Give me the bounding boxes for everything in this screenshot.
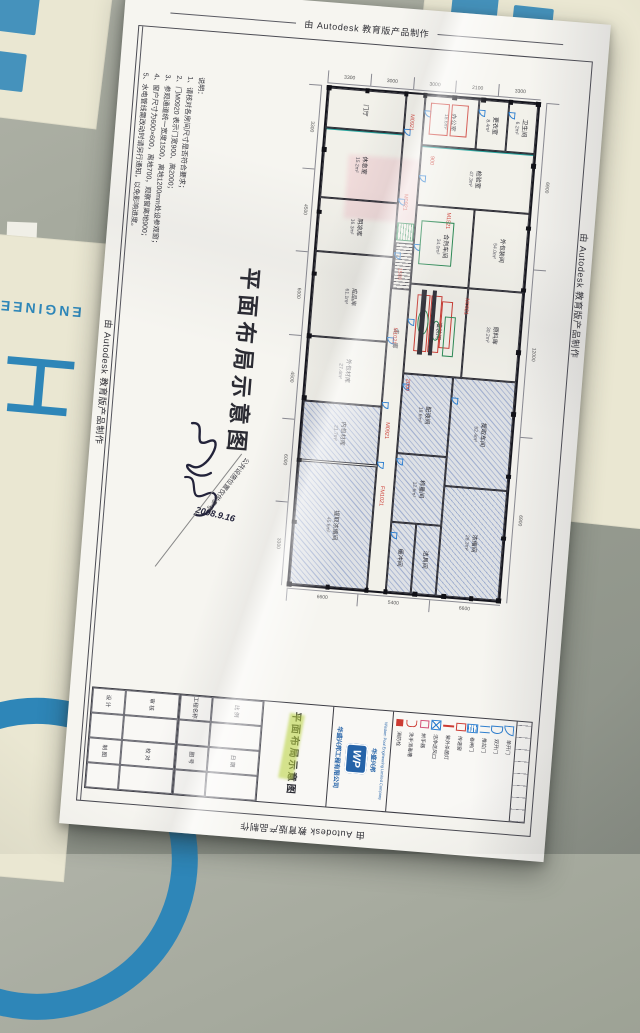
dimension-value: 6600 (428, 600, 500, 618)
signature-scribble (154, 412, 273, 541)
legend-symbol-roll-icon (467, 722, 479, 735)
legend-symbol-glyph (504, 726, 515, 737)
field-value (177, 719, 210, 746)
title-block-drawing-name-cell: 平面布局示意图 (257, 701, 335, 806)
dimension-value: 5400 (357, 594, 429, 612)
room-label: 配液间 (423, 406, 433, 425)
field-value (85, 762, 120, 790)
title-block-fields-b: 工程名称图 号比 例日 期 (173, 695, 265, 801)
column-square (404, 91, 409, 96)
door-code-annotation: 900 (428, 155, 435, 165)
legend-symbol-glyph (396, 718, 404, 726)
dimension-value: 3000 (370, 74, 414, 89)
column-square (452, 95, 457, 100)
title-block-fields-a: 设 计制 图审 核校 对 (85, 687, 181, 794)
red-markup-box (449, 105, 468, 138)
column-square (302, 395, 307, 400)
banner-glyph-block (0, 0, 40, 35)
field-value (89, 712, 124, 740)
legend-symbol-dryer-icon (419, 718, 429, 731)
room: 15.2m²休息室 (320, 127, 403, 203)
background-banner-topleft (0, 0, 115, 129)
room: 门厅 (326, 87, 407, 133)
column-square (412, 591, 417, 596)
banner-engineering-text: ENGINEE (0, 298, 82, 319)
room-label: 浓缩间 (470, 534, 480, 553)
room: 30.2m²原料库 (461, 289, 523, 383)
room-label: 更衣室 (491, 116, 501, 135)
legend-symbol-slide-icon (480, 723, 491, 736)
dimension-value: 2100 (455, 81, 499, 96)
column-square (506, 474, 511, 479)
legend-symbol-glyph (480, 725, 491, 733)
column-square (365, 88, 370, 93)
column-square (307, 333, 312, 338)
room-label: 称量间 (417, 480, 427, 499)
dimension-value: 3300 (302, 84, 321, 168)
column-square (297, 457, 302, 462)
column-square (469, 596, 474, 601)
room-label: 阴凉库 (355, 218, 365, 237)
dimension-value: 6000 (276, 417, 295, 501)
legend-symbol-glyph (406, 719, 418, 727)
title-block-logo-cell: 华盛兴邦工程有限公司 WP 华盛兴邦 Wisdom Pool Engineeri… (326, 707, 394, 811)
column-square (496, 598, 501, 603)
room-label: 提取浓缩间 (331, 510, 342, 541)
dimension-value: 4500 (296, 167, 315, 251)
field-label: 工程名称 (179, 695, 212, 722)
wp-logo-text: WP (349, 749, 362, 768)
legend-symbol-door1-icon (504, 725, 515, 738)
door-code-annotation: 1500 (396, 268, 403, 281)
room-label: 原料库 (491, 326, 501, 345)
legend-symbol-glyph (443, 725, 454, 728)
column-square (322, 147, 327, 152)
dimension-value: 3000 (413, 77, 457, 92)
design-notes: 说明： 1、请核对各房间尺寸是否符合要求；2、门M0920 表示门宽900、高2… (114, 72, 206, 394)
legend-symbol-air-icon (431, 719, 442, 732)
column-square (501, 536, 506, 541)
room-label: 外包材库 (343, 359, 354, 384)
dimension-value: 3300 (327, 70, 371, 85)
red-markup-box (428, 103, 449, 136)
title-block: 设 计制 图审 核校 对 工程名称图 号比 例日 期 平面布局示意图 华盛兴邦工… (84, 686, 533, 823)
column-square (287, 581, 292, 586)
door-code-annotation: 2000 (404, 378, 411, 391)
legend-symbol-glyph (431, 720, 442, 731)
dimension-value: 4500 (282, 334, 301, 418)
room-label: 内包材库 (338, 421, 349, 446)
room-label: 洁具间 (421, 550, 431, 569)
room: 6.2m²卫生间 (505, 102, 538, 154)
room: 28.3m²浓缩间 (436, 486, 508, 600)
company-name: 华盛兴邦工程有限公司 (331, 726, 345, 788)
legend-symbol-sink-icon (406, 717, 418, 730)
paper-sheet: 由 Autodesk 教育版产品制作 由 Autodesk 教育版产品制作 由 … (59, 0, 611, 862)
field-label: 制 图 (87, 737, 122, 765)
room: 27.4m²外包材库 (304, 336, 387, 407)
room-label: 缓冲间 (395, 548, 405, 567)
dimension-value: 3300 (269, 501, 288, 585)
legend-symbol-hydrant-icon (396, 716, 404, 729)
column-square (317, 209, 322, 214)
column-square (325, 584, 330, 589)
room: 8.4m²更衣室 (476, 100, 509, 152)
column-square (531, 164, 536, 169)
dimension-value: 3300 (498, 84, 542, 99)
room-label: 门厅 (361, 104, 371, 117)
room-area: 6.2m² (513, 121, 520, 134)
room: 61.1m²成品库 (309, 251, 393, 342)
room-label: 提取车间 (478, 422, 489, 447)
room: 54.0m²外包装间 (469, 209, 530, 293)
drawing-frame: 由 Autodesk 教育版产品制作 由 Autodesk 教育版产品制作 由 … (76, 25, 593, 837)
room: 45.6m²提取浓缩间 (289, 460, 376, 590)
column-square (364, 588, 369, 593)
building-outline: 走廊 门厅15.2m²休息室16.3m²阴凉库61.1m²成品库27.4m²外包… (287, 85, 541, 603)
room: 21.7m²内包材库 (299, 400, 381, 466)
room-label: 卫生间 (520, 119, 530, 138)
field-label: 设 计 (91, 687, 126, 715)
legend-symbol-glyph (455, 723, 466, 732)
column-square (423, 93, 428, 98)
room-label: 外包装间 (497, 239, 508, 264)
column-square (326, 85, 331, 90)
column-square (516, 350, 521, 355)
column-square (509, 100, 514, 105)
logo-caption: 华盛兴邦 (368, 748, 379, 773)
field-label: 图 号 (175, 744, 208, 771)
banner-big-char: 工 (0, 345, 78, 423)
column-square (383, 589, 388, 594)
legend-symbol-uv-icon (443, 720, 455, 733)
column-square (312, 271, 317, 276)
column-square (292, 519, 297, 524)
equipment-rect (418, 220, 455, 267)
column-square (511, 412, 516, 417)
room-label: 成品库 (349, 287, 359, 306)
legend-symbol-glyph (491, 726, 504, 735)
dimension-value: 6000 (289, 251, 308, 335)
wp-logo: WP (344, 743, 368, 775)
column-square (441, 594, 446, 599)
field-value (118, 765, 174, 794)
column-square (481, 97, 486, 102)
legend-symbol-door2-icon (491, 724, 504, 737)
column-square (536, 102, 541, 107)
field-value (173, 769, 206, 796)
field-value (204, 772, 257, 801)
column-square (521, 288, 526, 293)
column-square (526, 226, 531, 231)
room-label: 检验室 (474, 170, 484, 189)
room: 16.3m²阴凉库 (316, 197, 398, 258)
legend-symbol-glyph (419, 720, 429, 729)
legend-symbol-glyph (467, 723, 479, 733)
floor-plan: 33003000300021003300 660054006600 330045… (260, 65, 564, 620)
room-label: 休息室 (360, 156, 370, 175)
dimension-value: 6600 (286, 589, 358, 607)
legend-symbol-pass-icon (455, 721, 466, 734)
legend: 消防栓洗手消毒槽烘手器洁净送风口紫外杀菌灯传递窗卷闸门推拉门双开门单开门 (386, 712, 518, 822)
equipment-grid (396, 223, 414, 242)
banner-glyph-block (0, 50, 27, 93)
room-area: 8.4m² (484, 119, 491, 132)
